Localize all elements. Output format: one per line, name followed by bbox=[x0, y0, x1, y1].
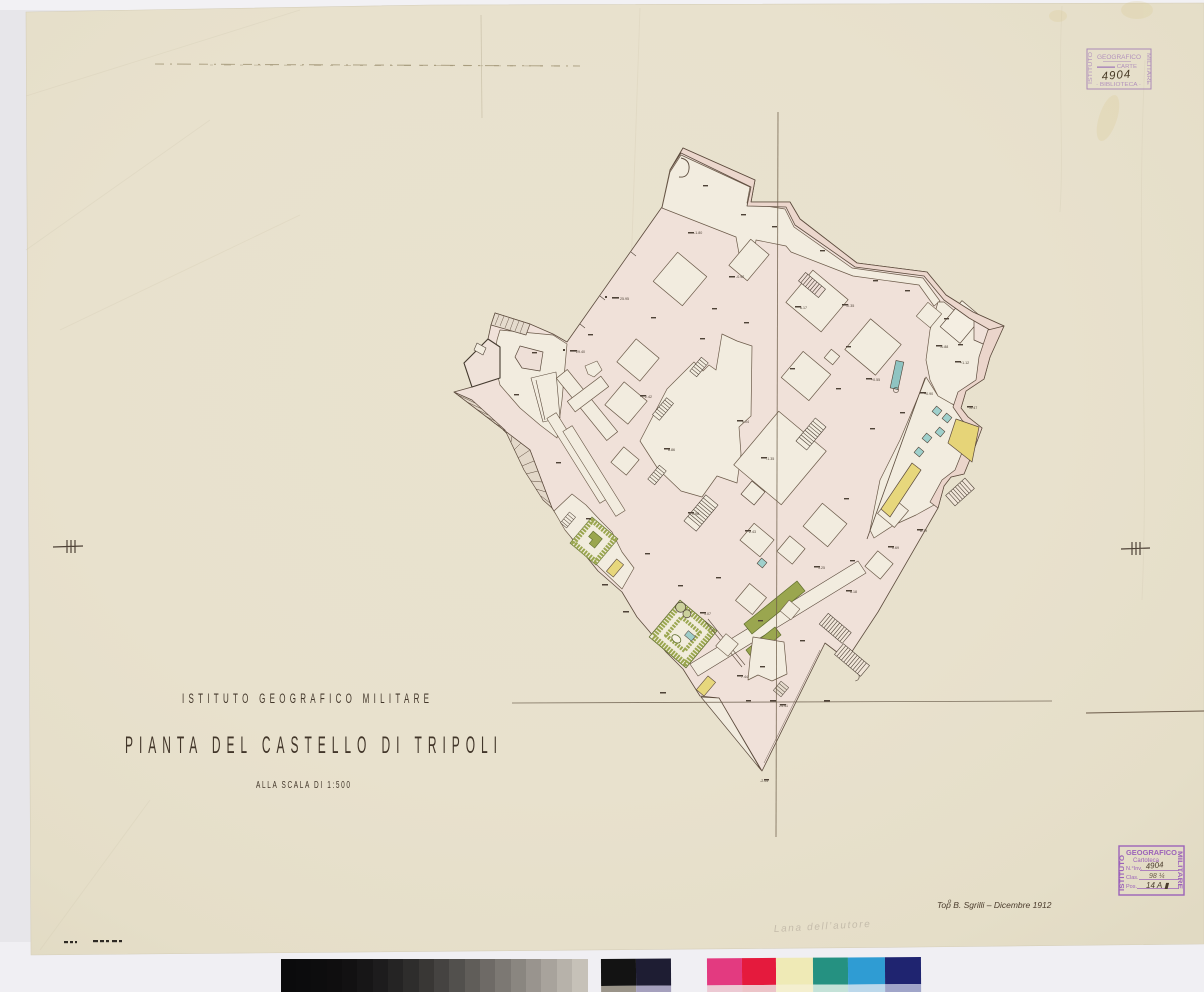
svg-text:98 ¼: 98 ¼ bbox=[1149, 873, 1165, 880]
svg-text:-0.88: -0.88 bbox=[940, 345, 948, 349]
svg-text:1.07: 1.07 bbox=[704, 612, 711, 616]
svg-text:-0.47: -0.47 bbox=[969, 406, 977, 410]
svg-text:-1.35: -1.35 bbox=[766, 457, 774, 461]
svg-text:Topͦ B. Sgrilli – Dicembre 191: Topͦ B. Sgrilli – Dicembre 1912 bbox=[937, 899, 1052, 910]
svg-text:1.25: 1.25 bbox=[818, 566, 825, 570]
svg-text:-2.05: -2.05 bbox=[760, 779, 768, 783]
svg-text:8.79: 8.79 bbox=[920, 529, 927, 533]
svg-text:+0.55: +0.55 bbox=[871, 378, 880, 382]
svg-text:9.04: 9.04 bbox=[742, 420, 749, 424]
svg-text:Pos.: Pos. bbox=[1126, 884, 1137, 890]
svg-text:ISTITUTO: ISTITUTO bbox=[1120, 855, 1126, 891]
svg-text:0.98: 0.98 bbox=[692, 512, 699, 516]
svg-text:4904: 4904 bbox=[1101, 68, 1132, 83]
svg-text:6.17: 6.17 bbox=[800, 306, 807, 310]
svg-text:MILITARE: MILITARE bbox=[1176, 851, 1182, 889]
svg-text:MILITARE: MILITARE bbox=[1145, 53, 1151, 86]
svg-text:6.18: 6.18 bbox=[850, 590, 857, 594]
svg-text:ISTITUTO: ISTITUTO bbox=[1088, 52, 1094, 84]
svg-text:4904: 4904 bbox=[1145, 860, 1164, 871]
svg-text:-2.35: -2.35 bbox=[846, 304, 854, 308]
svg-text:7.44: 7.44 bbox=[741, 675, 748, 679]
svg-text:ALLA SCALA DI 1:500: ALLA SCALA DI 1:500 bbox=[256, 778, 350, 790]
svg-text:29.40: 29.40 bbox=[576, 350, 585, 354]
svg-text:N.°Inv.: N.°Inv. bbox=[1126, 866, 1143, 872]
svg-text:+1.12: +1.12 bbox=[960, 361, 969, 365]
svg-text:0.69: 0.69 bbox=[892, 546, 899, 550]
svg-text:GEOGRAFICO: GEOGRAFICO bbox=[1097, 55, 1141, 61]
svg-text:GEOGRAFICO: GEOGRAFICO bbox=[1126, 850, 1178, 857]
svg-text:+0.90: +0.90 bbox=[924, 392, 933, 396]
svg-text:24.41: 24.41 bbox=[779, 704, 788, 708]
svg-text:Clas.: Clas. bbox=[1126, 875, 1139, 881]
svg-text:25.95: 25.95 bbox=[620, 297, 629, 301]
svg-text:-0.92: -0.92 bbox=[736, 275, 744, 279]
svg-text:-1.80: -1.80 bbox=[694, 231, 702, 235]
svg-text:2.42: 2.42 bbox=[645, 395, 652, 399]
svg-text:14 A ▮: 14 A ▮ bbox=[1146, 881, 1169, 890]
svg-text:8.86: 8.86 bbox=[668, 448, 675, 452]
svg-text:2.43: 2.43 bbox=[749, 530, 756, 534]
